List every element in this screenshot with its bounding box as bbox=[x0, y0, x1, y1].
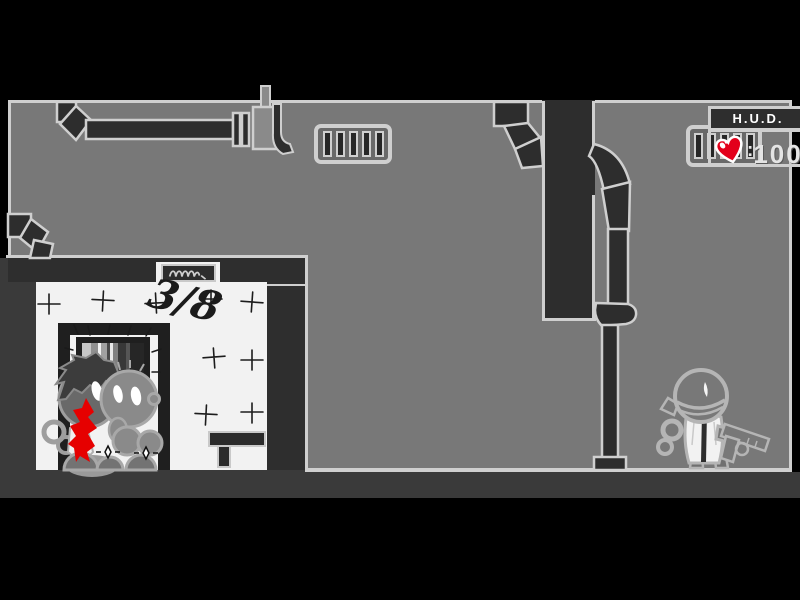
right-dark-pillar-outline bbox=[305, 258, 308, 470]
window-bar bbox=[91, 343, 98, 408]
barred-window bbox=[76, 337, 150, 414]
wall-vent-mid bbox=[314, 124, 392, 164]
vent-slat bbox=[336, 131, 345, 157]
vent-slat bbox=[375, 131, 384, 157]
alcove-frame-right bbox=[158, 323, 170, 470]
alcove-frame-left bbox=[58, 323, 70, 470]
hud-health-value: 100 bbox=[753, 139, 800, 167]
table-sign-leg bbox=[217, 447, 231, 468]
hand-circle bbox=[658, 440, 672, 454]
hud-health-panel: : 100 bbox=[708, 129, 800, 167]
right-dark-pillar bbox=[267, 258, 305, 470]
white-room-ceiling-bar bbox=[8, 258, 267, 282]
frame-right bbox=[792, 0, 800, 600]
vent-slat bbox=[323, 131, 332, 157]
ceiling-outline-left bbox=[8, 100, 542, 103]
vent-slat bbox=[362, 131, 371, 157]
pillar-seam bbox=[267, 284, 305, 286]
left-wall-outline bbox=[8, 100, 11, 258]
vent-slat bbox=[694, 133, 703, 159]
letterbox-bottom bbox=[0, 498, 800, 600]
below-floor-band bbox=[0, 472, 800, 498]
vent-slat bbox=[349, 131, 358, 157]
shoulder-ring bbox=[663, 421, 681, 439]
game-canvas[interactable]: 3/8 H.U.D. : 100 bbox=[0, 0, 800, 600]
window-bar bbox=[130, 343, 144, 408]
ceiling-outline-right bbox=[595, 100, 792, 103]
table-sign-top bbox=[208, 431, 266, 447]
window-bar bbox=[118, 343, 126, 408]
heart-icon bbox=[713, 133, 747, 167]
window-bar bbox=[82, 343, 91, 408]
letterbox-top bbox=[0, 0, 800, 100]
hud-title: H.U.D. bbox=[708, 106, 800, 131]
